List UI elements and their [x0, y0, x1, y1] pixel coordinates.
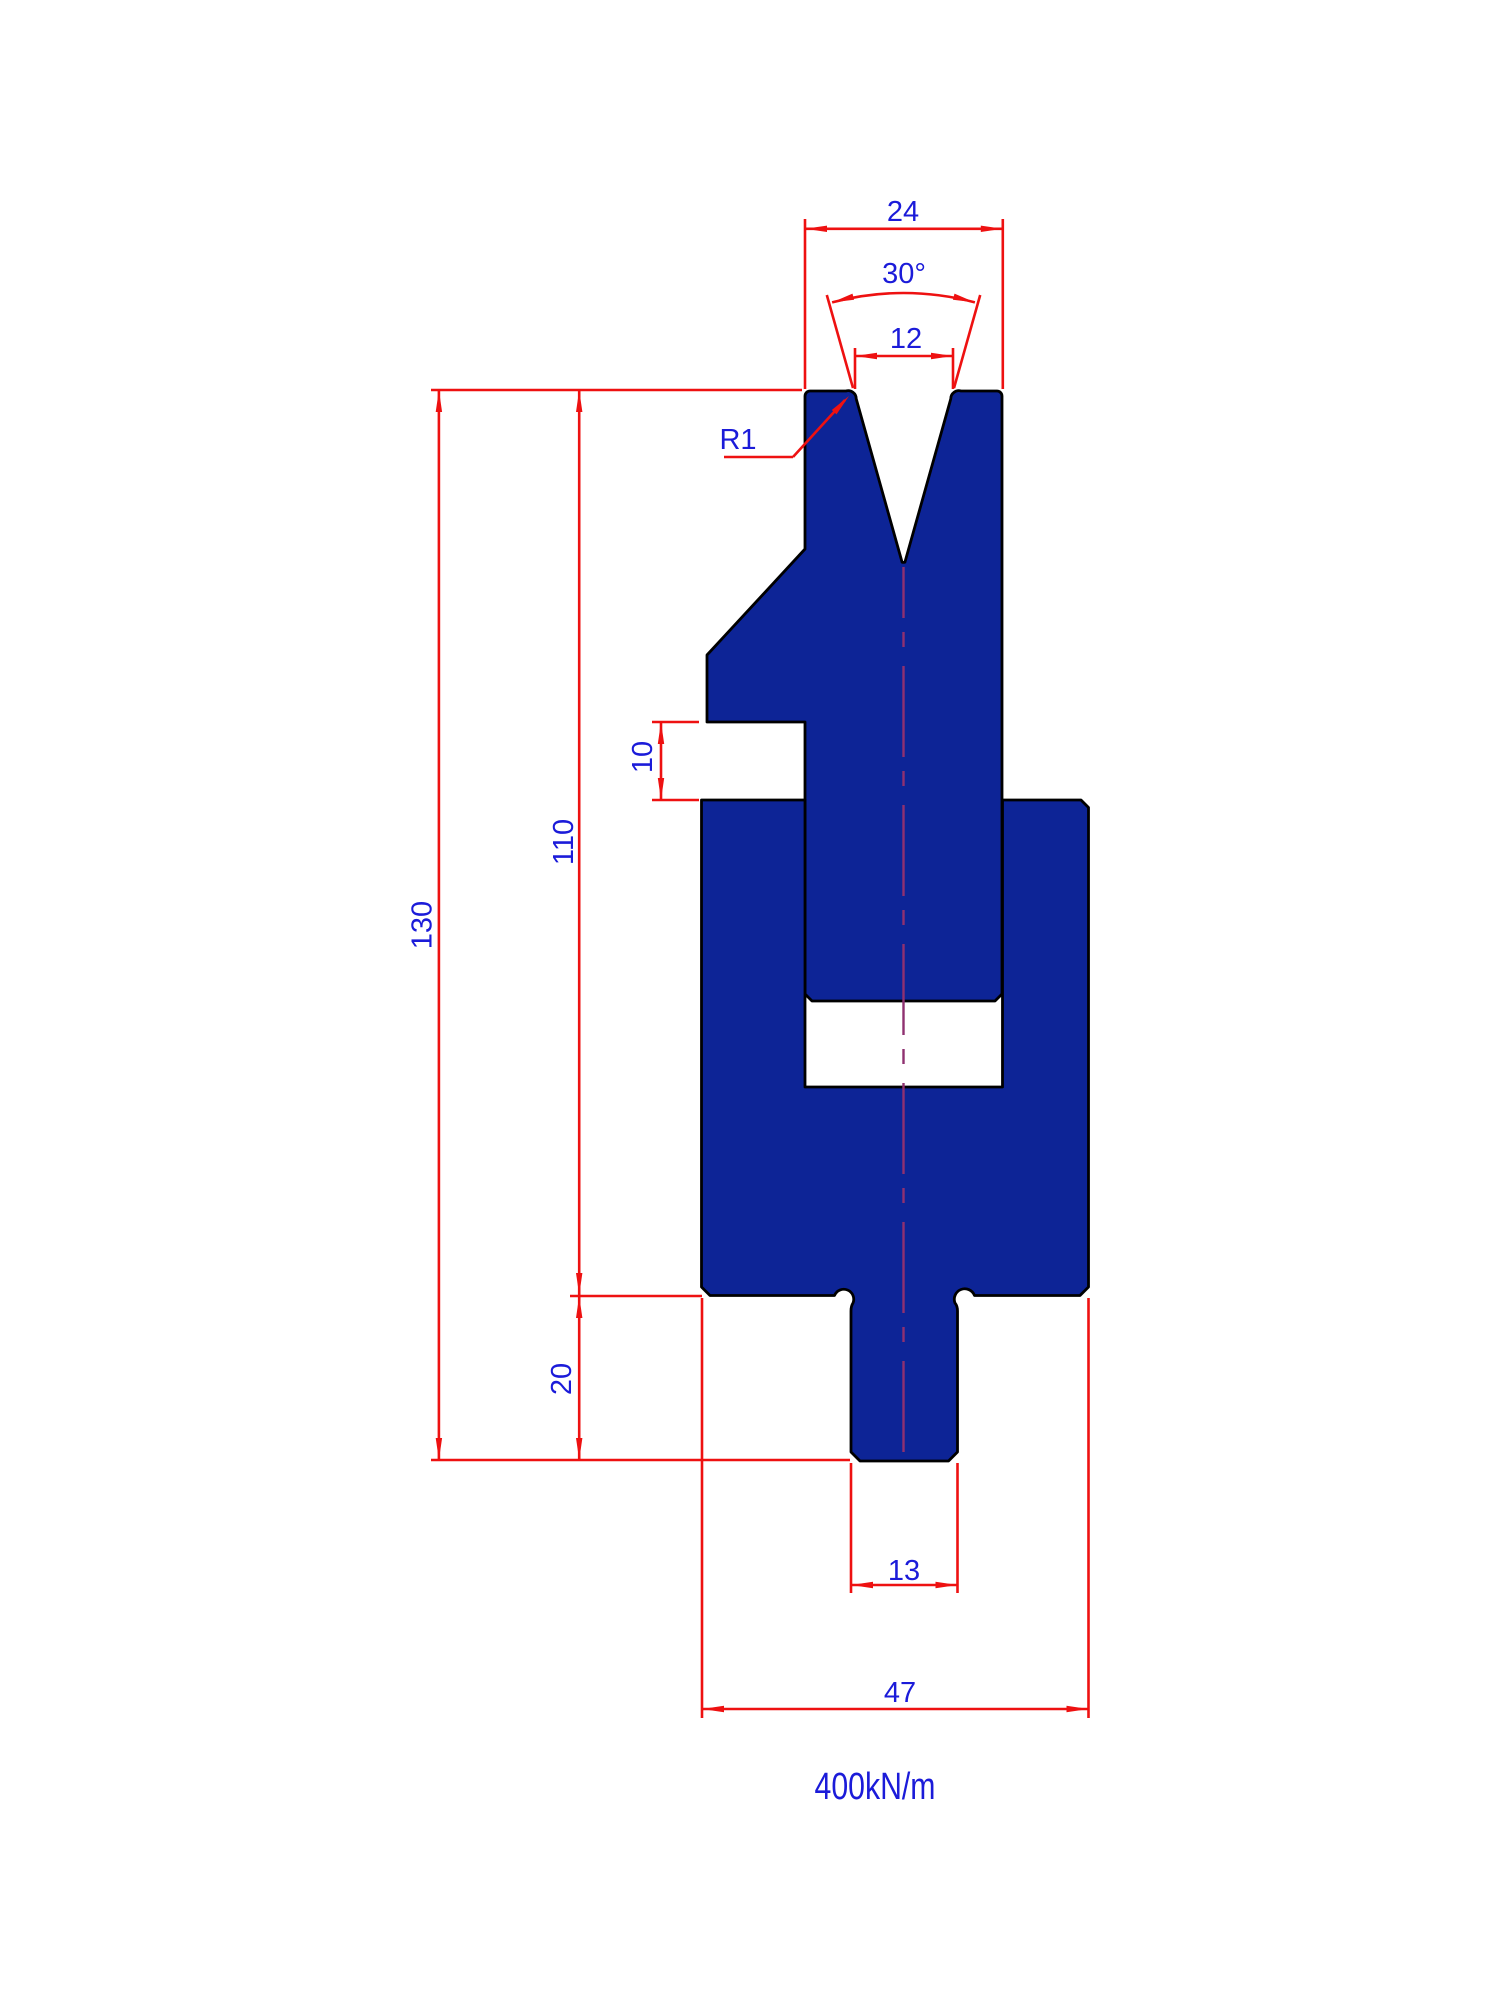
svg-text:47: 47 — [884, 1677, 916, 1709]
svg-text:110: 110 — [548, 819, 580, 865]
svg-text:10: 10 — [627, 741, 659, 773]
svg-text:12: 12 — [890, 323, 922, 355]
svg-text:130: 130 — [407, 901, 439, 949]
svg-text:13: 13 — [888, 1555, 920, 1587]
svg-text:20: 20 — [546, 1363, 578, 1395]
svg-text:R1: R1 — [719, 424, 756, 456]
svg-text:400kN/m: 400kN/m — [815, 1766, 936, 1808]
svg-text:30°: 30° — [882, 258, 926, 290]
svg-text:24: 24 — [887, 196, 919, 228]
